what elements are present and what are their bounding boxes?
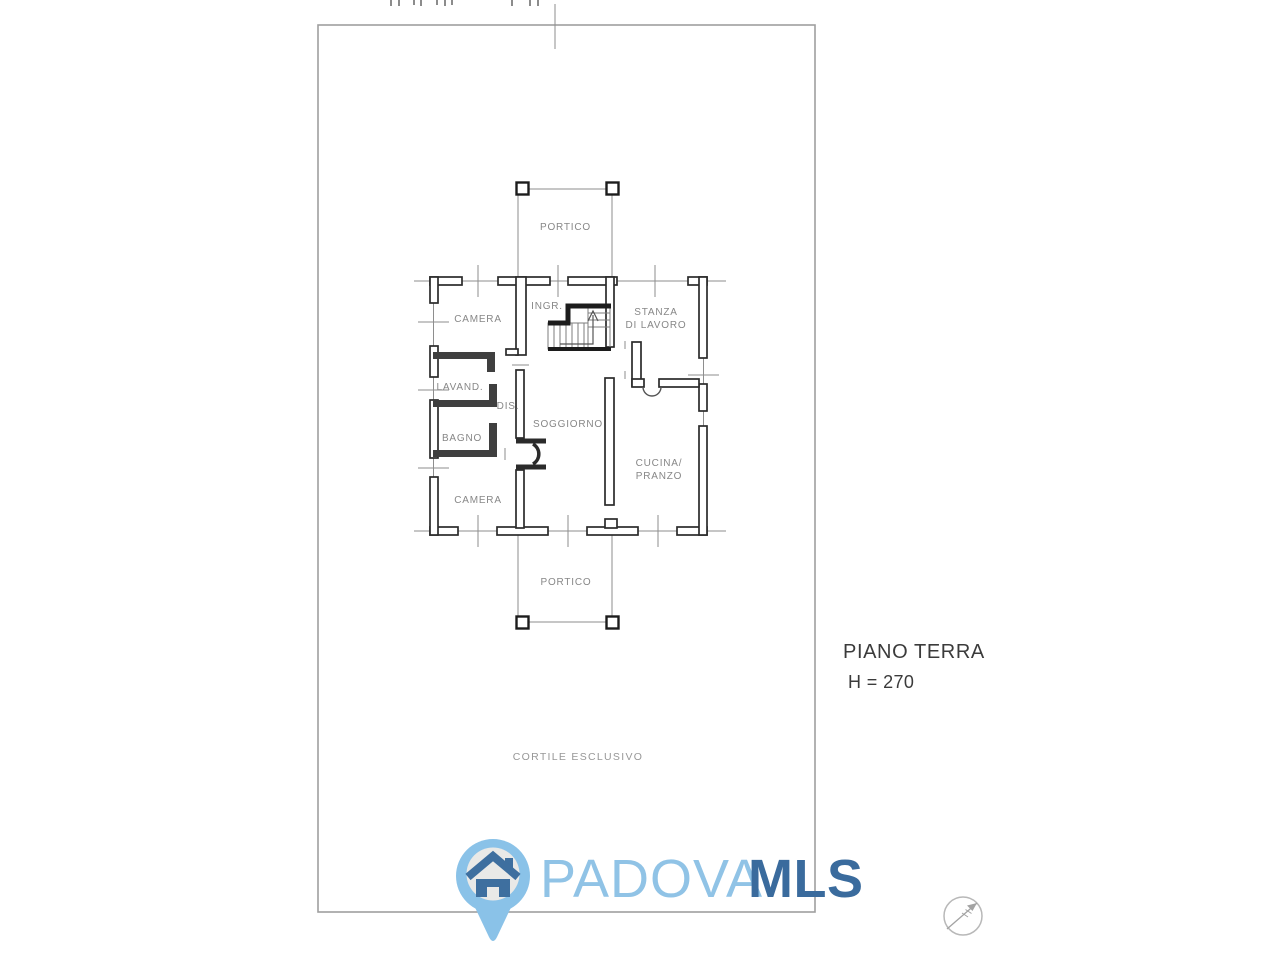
logo-wordmark-light: PADOVA — [540, 849, 763, 909]
label-stanza-1: STANZA — [634, 307, 678, 318]
label-lavanderia: LAVAND. — [437, 382, 484, 393]
door-swing-arc — [643, 387, 661, 396]
floor-plan-drawing: PORTICO CAMERA INGR. STANZA DI LAVORO LA… — [0, 0, 1280, 960]
logo-wordmark-bold: MLS — [748, 849, 864, 909]
label-disimpegno: DIS. — [497, 401, 520, 412]
label-bagno: BAGNO — [442, 433, 482, 444]
label-cucina-2: PRANZO — [636, 471, 682, 482]
label-ingresso: INGR. — [531, 301, 563, 312]
compass-icon — [944, 897, 982, 935]
cropped-edge-marks — [391, 0, 538, 6]
label-soggiorno: SOGGIORNO — [533, 419, 603, 430]
label-stanza-2: DI LAVORO — [626, 320, 687, 331]
label-camera-top: CAMERA — [454, 314, 502, 325]
pillar — [607, 183, 619, 195]
label-cortile: CORTILE ESCLUSIVO — [513, 751, 643, 763]
label-camera-bottom: CAMERA — [454, 495, 502, 506]
pillar — [517, 183, 529, 195]
floor-height-note: H = 270 — [848, 672, 914, 692]
label-portico-top: PORTICO — [540, 222, 591, 233]
label-cucina-1: CUCINA/ — [636, 458, 683, 469]
fireplace — [516, 441, 546, 467]
room-labels: PORTICO CAMERA INGR. STANZA DI LAVORO LA… — [437, 222, 687, 763]
map-pin-house-icon — [456, 839, 530, 941]
staircase — [548, 306, 611, 349]
floor-annotation: PIANO TERRA H = 270 — [843, 641, 985, 692]
floor-title: PIANO TERRA — [843, 641, 985, 663]
padovamls-logo: PADOVA MLS — [456, 839, 864, 941]
property-boundary — [318, 4, 815, 912]
floorplan-page: PORTICO CAMERA INGR. STANZA DI LAVORO LA… — [0, 0, 1280, 960]
pillar — [517, 617, 529, 629]
pillar — [607, 617, 619, 629]
label-portico-bottom: PORTICO — [541, 577, 592, 588]
